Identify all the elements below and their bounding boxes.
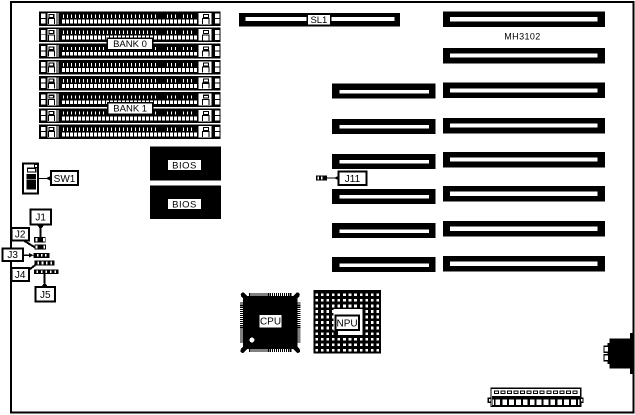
svg-text:BANK 1: BANK 1 — [113, 104, 147, 115]
svg-text:J1: J1 — [35, 213, 46, 224]
svg-text:J5: J5 — [40, 290, 51, 301]
svg-text:BIOS: BIOS — [172, 199, 197, 210]
svg-text:SW1: SW1 — [54, 174, 76, 185]
svg-text:J2: J2 — [15, 230, 26, 241]
svg-text:SL1: SL1 — [310, 15, 327, 26]
svg-text:BANK 0: BANK 0 — [113, 39, 147, 50]
svg-text:J4: J4 — [15, 270, 26, 281]
svg-text:J3: J3 — [7, 250, 18, 261]
svg-text:MH3102: MH3102 — [504, 32, 540, 42]
svg-text:CPU: CPU — [260, 317, 281, 328]
svg-text:J11: J11 — [345, 174, 361, 185]
svg-text:BIOS: BIOS — [172, 160, 197, 171]
svg-text:NPU: NPU — [337, 319, 358, 330]
